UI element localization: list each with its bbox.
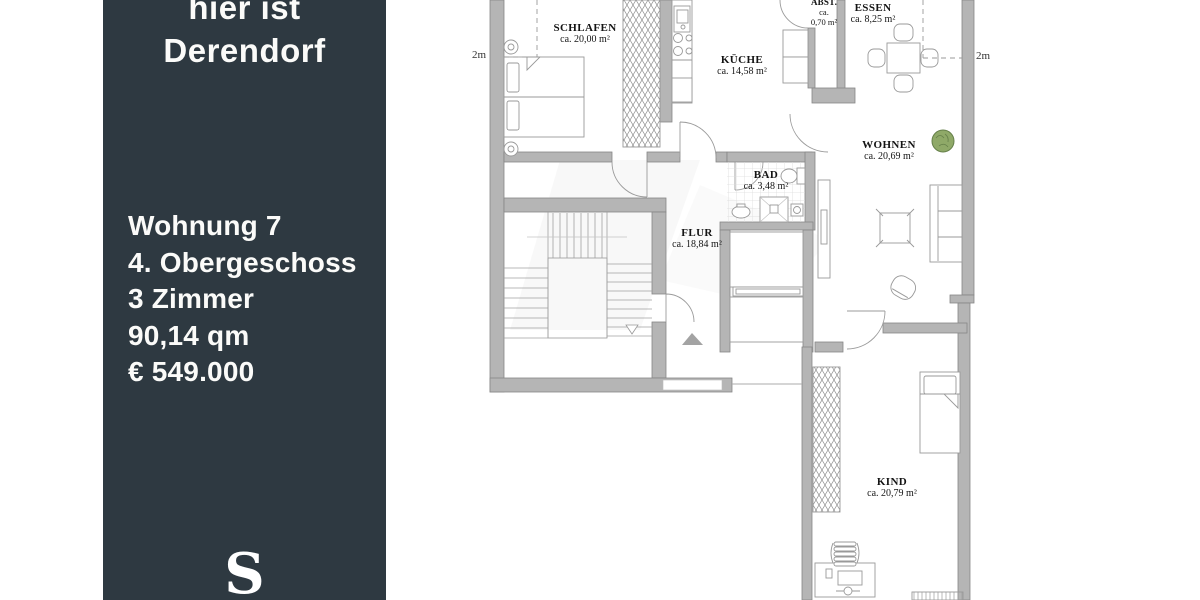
room-area: ca. 8,25 m² <box>851 14 896 25</box>
entrance-marker <box>682 333 703 345</box>
wardrobe-kind <box>813 367 840 512</box>
plant <box>932 130 954 152</box>
room-name: KÜCHE <box>717 54 767 66</box>
room-area: ca. 14,58 m² <box>717 66 767 77</box>
wall-niche <box>663 380 722 390</box>
room-area: ca. 20,00 m² <box>553 34 616 45</box>
screenshot-root: SCHLAFEN ca. 20,00 m² KÜCHE ca. 14,58 m²… <box>0 0 1200 600</box>
hall-closets <box>730 232 803 342</box>
dimension-label-3m-right: 3m <box>971 0 985 3</box>
room-area: 0,70 m² <box>811 17 837 27</box>
location-tagline: hier ist Derendorf <box>103 0 386 72</box>
sidebar: hier ist Derendorf Wohnung 7 4. Obergesc… <box>103 0 386 600</box>
detail-price: € 549.000 <box>128 354 357 391</box>
kitchen-fixtures <box>672 0 808 103</box>
room-label-bad: BAD ca. 3,48 m² <box>744 169 789 192</box>
room-label-abstellraum: ABST. ca. 0,70 m² <box>811 0 837 27</box>
room-area: ca. <box>811 7 837 17</box>
brand-logo: S <box>103 546 386 600</box>
room-name: WOHNEN <box>862 139 916 151</box>
tagline-line2: Derendorf <box>103 29 386 72</box>
room-label-flur: FLUR ca. 18,84 m² <box>672 227 722 250</box>
room-name: ESSEN <box>851 2 896 14</box>
room-name: ABST. <box>811 0 837 7</box>
dimension-label-3m-left: 3m <box>460 0 486 3</box>
tagline-line1: hier ist <box>103 0 386 29</box>
dimension-label-2m-left: 2m <box>460 49 486 61</box>
detail-unit: Wohnung 7 <box>128 208 357 245</box>
room-name: KIND <box>867 476 917 488</box>
room-label-kind: KIND ca. 20,79 m² <box>867 476 917 499</box>
room-area: ca. 20,79 m² <box>867 488 917 499</box>
room-label-schlafen: SCHLAFEN ca. 20,00 m² <box>553 22 616 45</box>
apartment-details: Wohnung 7 4. Obergeschoss 3 Zimmer 90,14… <box>128 208 357 391</box>
room-area: ca. 18,84 m² <box>672 239 722 250</box>
room-area: ca. 20,69 m² <box>862 151 916 162</box>
room-name: BAD <box>744 169 789 181</box>
room-name: FLUR <box>672 227 722 239</box>
detail-rooms-count: 3 Zimmer <box>128 281 357 318</box>
room-name: SCHLAFEN <box>553 22 616 34</box>
wardrobe-schlafen <box>623 0 660 147</box>
dimension-label-2m-right: 2m <box>976 50 990 62</box>
room-label-wohnen: WOHNEN ca. 20,69 m² <box>862 139 916 162</box>
living-room-furniture <box>818 180 962 303</box>
room-label-essen: ESSEN ca. 8,25 m² <box>851 2 896 25</box>
room-area: ca. 3,48 m² <box>744 181 789 192</box>
detail-living-space: 90,14 qm <box>128 318 357 355</box>
room-label-kueche: KÜCHE ca. 14,58 m² <box>717 54 767 77</box>
detail-floor: 4. Obergeschoss <box>128 245 357 282</box>
